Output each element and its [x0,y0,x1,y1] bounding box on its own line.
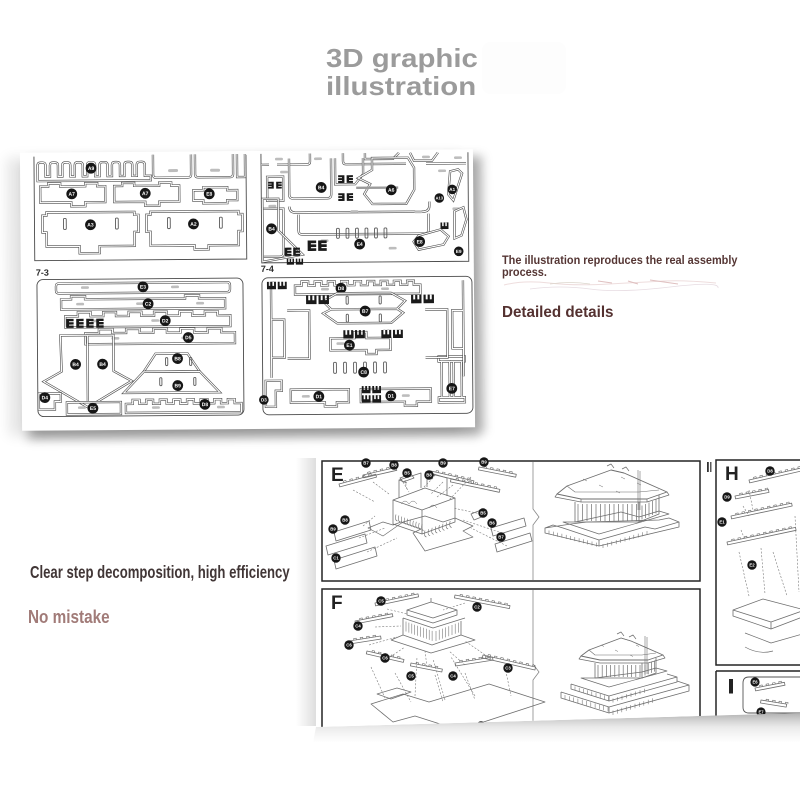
svg-text:C2: C2 [145,302,152,308]
svg-text:B8: B8 [174,356,181,362]
svg-text:A1: A1 [449,187,455,192]
svg-text:B4: B4 [99,362,106,368]
svg-text:B8: B8 [342,518,348,523]
svg-text:A3: A3 [87,223,94,229]
svg-text:B7: B7 [363,461,369,466]
svg-text:A6: A6 [388,188,395,194]
svg-text:E8: E8 [206,192,212,198]
svg-text:D3: D3 [261,398,267,403]
svg-text:C1: C1 [333,556,339,561]
svg-text:C6: C6 [382,656,388,661]
svg-text:A13: A13 [436,195,444,200]
svg-text:B9: B9 [330,527,336,532]
svg-text:H: H [725,464,739,485]
svg-text:E2: E2 [749,563,755,568]
svg-text:C3: C3 [505,666,511,671]
svg-text:D5: D5 [185,335,192,341]
svg-text:E8: E8 [417,239,423,245]
svg-text:D1: D1 [388,394,395,400]
svg-text:D8: D8 [202,402,209,408]
svg-text:E5: E5 [90,406,96,412]
svg-text:C4: C4 [450,674,456,679]
svg-text:B4: B4 [268,227,275,233]
svg-text:D1: D1 [316,394,323,400]
svg-text:C4: C4 [355,624,361,629]
svg-text:F: F [331,593,343,614]
svg-text:E1: E1 [719,520,725,525]
svg-text:C5: C5 [408,674,414,679]
svg-text:D4: D4 [42,395,49,401]
svg-text:A2: A2 [190,222,197,228]
svg-text:E6: E6 [752,680,758,685]
svg-text:B4: B4 [72,362,79,368]
svg-text:B4: B4 [318,185,325,191]
svg-text:D8: D8 [338,286,345,292]
svg-text:C8: C8 [360,370,367,376]
svg-text:E4: E4 [357,242,363,248]
svg-text:B7: B7 [362,309,369,315]
svg-text:E7: E7 [449,386,455,392]
svg-text:7-4: 7-4 [261,264,274,274]
svg-text:B5: B5 [404,471,410,476]
svg-text:A7: A7 [142,191,149,197]
svg-text:D2: D2 [162,318,169,324]
svg-text:E1: E1 [346,343,352,349]
svg-text:B8: B8 [391,463,397,468]
svg-text:D8: D8 [767,469,773,474]
svg-text:A9: A9 [88,166,95,172]
svg-text:A7: A7 [69,192,76,198]
svg-text:B6: B6 [489,521,495,526]
svg-text:B7: B7 [498,535,504,540]
svg-text:E3: E3 [140,285,146,291]
svg-text:C5: C5 [378,599,384,604]
svg-text:B9: B9 [440,461,446,466]
svg-text:B9: B9 [175,383,182,389]
svg-text:C2: C2 [474,605,480,610]
svg-text:E9: E9 [456,249,462,254]
svg-text:7-3: 7-3 [36,268,49,278]
svg-text:D9: D9 [724,495,730,500]
svg-text:B8: B8 [426,473,432,478]
svg-text:B5: B5 [480,511,486,516]
svg-text:E7: E7 [758,710,764,715]
svg-text:C6: C6 [346,643,352,648]
svg-text:B9: B9 [481,460,487,465]
